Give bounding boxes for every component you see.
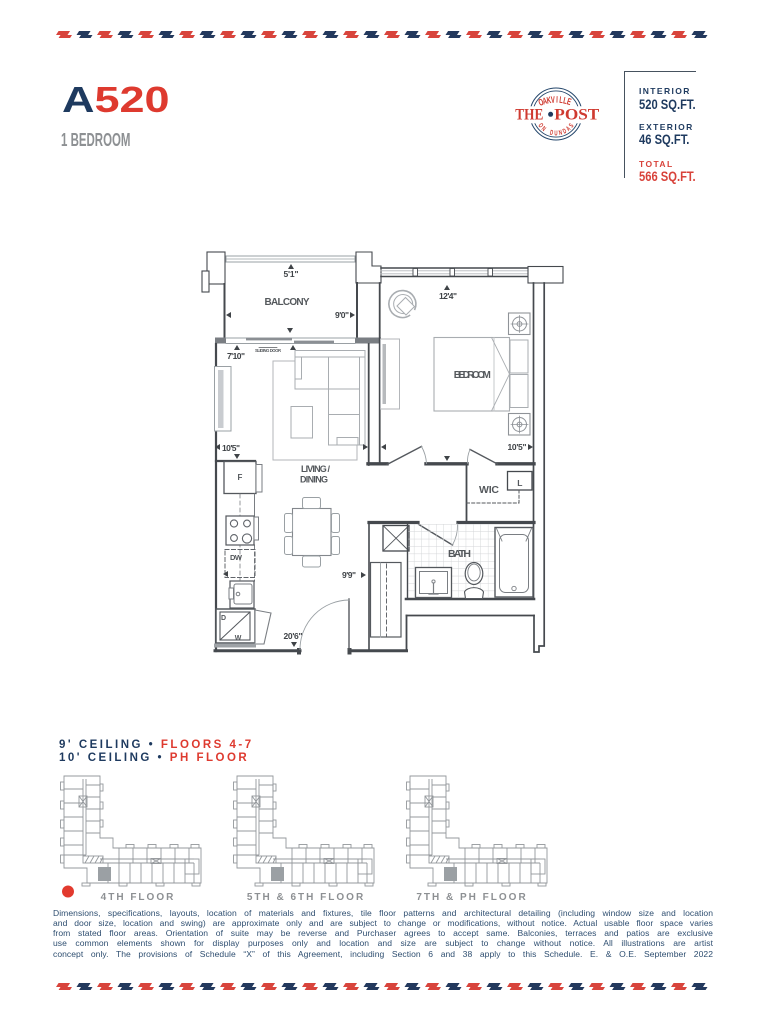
svg-text:BALCONY: BALCONY	[265, 297, 310, 308]
svg-text:POST: POST	[554, 106, 599, 123]
svg-text:L: L	[517, 478, 522, 488]
svg-text:9'9": 9'9"	[342, 570, 356, 580]
svg-text:F: F	[238, 473, 243, 482]
svg-text:DINING: DINING	[300, 475, 328, 485]
svg-text:BEDROOM: BEDROOM	[454, 370, 491, 381]
svg-text:U: U	[554, 131, 557, 138]
svg-text:10'5": 10'5"	[222, 443, 240, 453]
svg-text:WIC: WIC	[479, 484, 499, 496]
svg-text:BATH: BATH	[448, 548, 471, 560]
svg-text:I: I	[556, 94, 558, 105]
svg-text:9'0": 9'0"	[335, 310, 349, 320]
svg-text:D: D	[549, 130, 554, 138]
svg-text:12'4": 12'4"	[439, 291, 457, 301]
svg-text:DW: DW	[230, 553, 243, 562]
svg-text:7'10": 7'10"	[227, 351, 245, 361]
svg-text:V: V	[551, 94, 556, 105]
svg-text:5'1": 5'1"	[284, 269, 299, 279]
svg-text:20'6": 20'6"	[284, 631, 303, 641]
svg-text:W: W	[235, 635, 242, 642]
svg-text:LIVING /: LIVING /	[301, 464, 330, 474]
svg-text:D: D	[221, 615, 226, 622]
svg-text:10'5": 10'5"	[508, 442, 527, 452]
svg-text:THE: THE	[515, 106, 543, 123]
svg-text:SLIDING DOOR: SLIDING DOOR	[255, 348, 281, 353]
